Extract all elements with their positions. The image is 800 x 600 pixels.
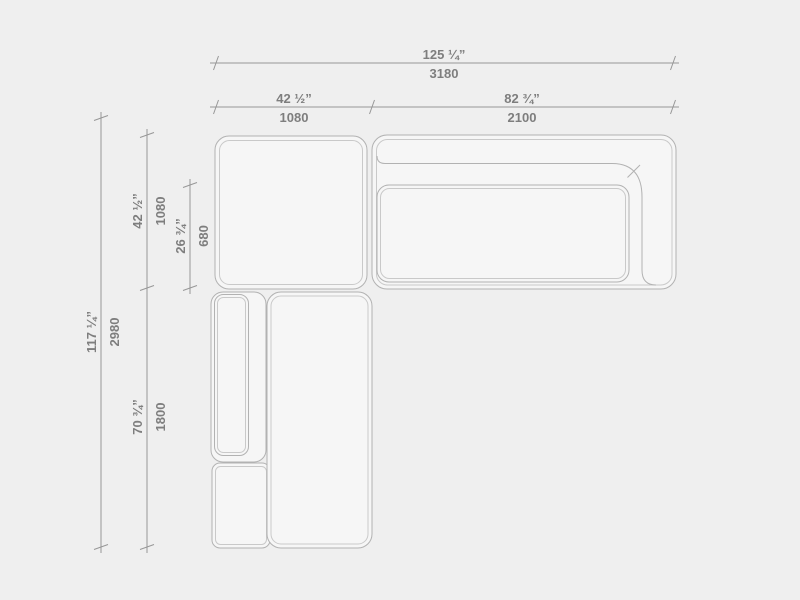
dim-overall-width-inches: 125 ¼” [423,47,466,62]
dim-left-section-width-mm: 1080 [280,110,309,125]
dim-overall-width-mm: 3180 [430,66,459,81]
dim-overall-depth: 117 ¼” 2980 [84,112,122,553]
dimension-annotations: 125 ¼” 3180 42 ½” 1080 82 ¾” 2100 117 ¼” [84,47,679,553]
dim-seat-depth-inches: 26 ¾” [173,218,188,253]
dim-depth-splits: 42 ½” 1080 70 ¾” 1800 [130,129,168,553]
dim-right-section-width-inches: 82 ¾” [504,91,539,106]
dim-top-module-depth-mm: 1080 [153,197,168,226]
chaise-seat [267,292,372,548]
chaise-body-extension [212,463,270,548]
dim-right-section-width-mm: 2100 [508,110,537,125]
chaise-armrest-cushion [215,295,249,456]
left-seat-module [215,136,367,289]
sofa-top-view [211,135,676,548]
dim-section-widths: 42 ½” 1080 82 ¾” 2100 [210,91,679,125]
dim-chaise-depth-inches: 70 ¾” [130,399,145,434]
dim-overall-width: 125 ¼” 3180 [210,47,679,81]
dim-chaise-depth-mm: 1800 [153,403,168,432]
dim-top-module-depth-inches: 42 ½” [130,193,145,228]
dim-overall-depth-mm: 2980 [107,318,122,347]
sofa-dimension-drawing: 125 ¼” 3180 42 ½” 1080 82 ¾” 2100 117 ¼” [0,0,800,600]
dim-seat-depth-mm: 680 [196,225,211,247]
drawing-canvas: 125 ¼” 3180 42 ½” 1080 82 ¾” 2100 117 ¼” [0,0,800,600]
dim-left-section-width-inches: 42 ½” [276,91,311,106]
dim-seat-depth: 26 ¾” 680 [173,179,211,294]
dim-overall-depth-inches: 117 ¼” [84,311,99,353]
right-seat-cushion [377,185,629,282]
